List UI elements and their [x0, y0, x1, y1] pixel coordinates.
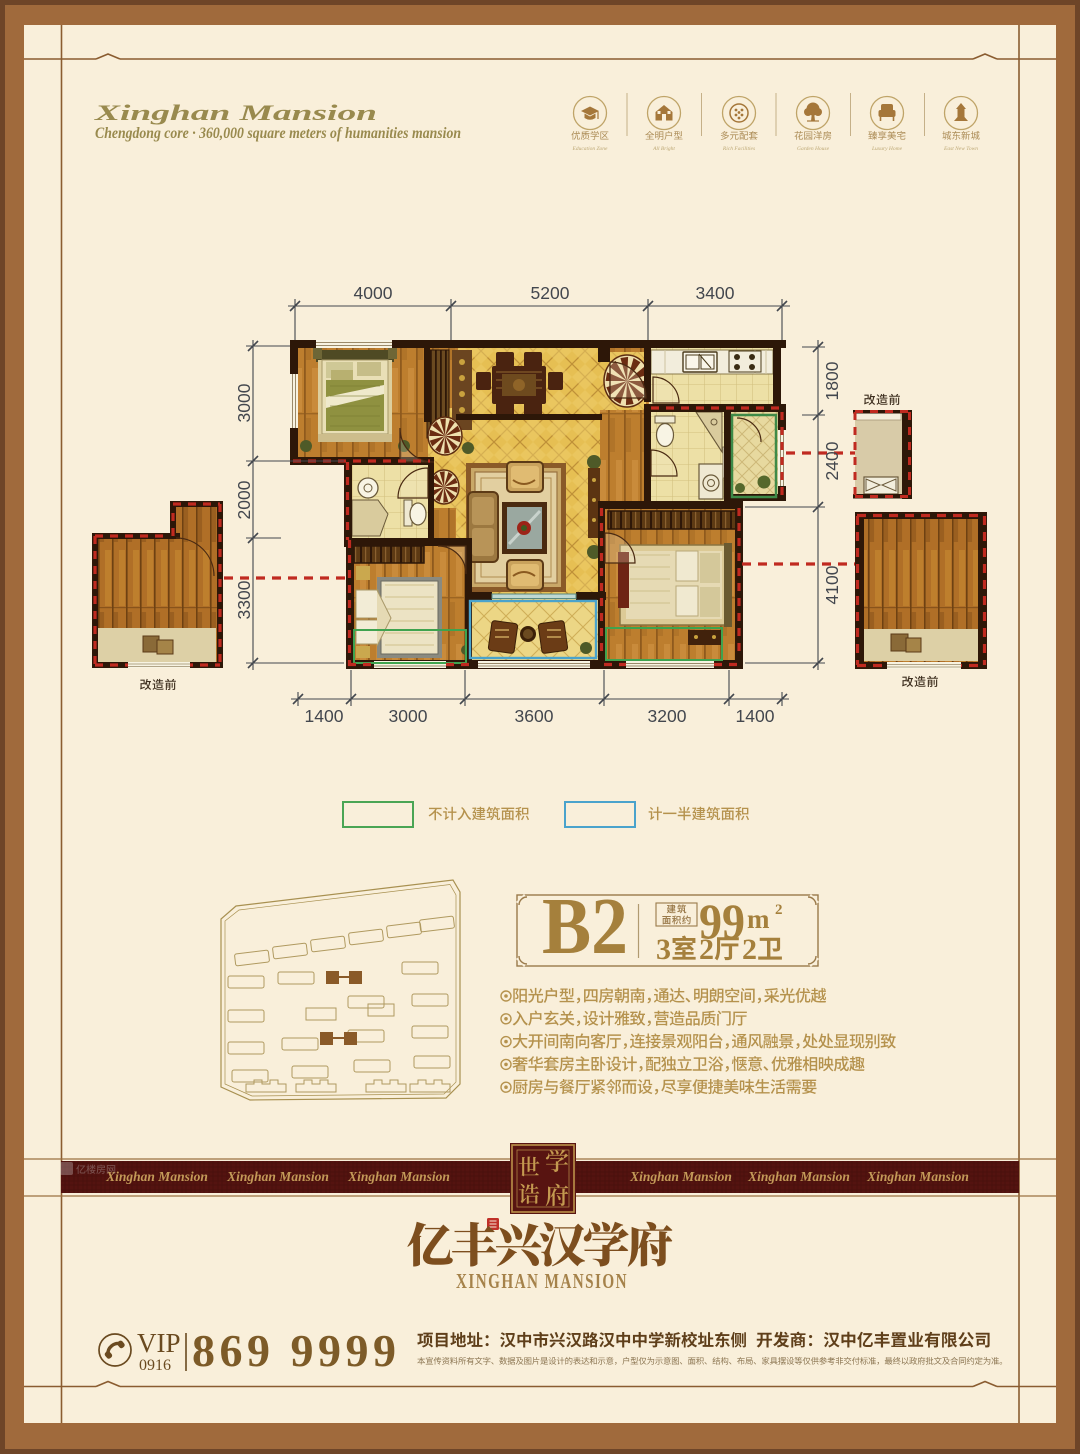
svg-text:Rich Facilities: Rich Facilities — [722, 146, 755, 152]
svg-text:4100: 4100 — [822, 565, 842, 604]
svg-text:Xinghan Mansion: Xinghan Mansion — [347, 1169, 450, 1184]
svg-text:East New Town: East New Town — [943, 146, 978, 152]
svg-text:2400: 2400 — [822, 441, 842, 480]
svg-text:Xinghan Mansion: Xinghan Mansion — [866, 1169, 969, 1184]
svg-text:Luxury Home: Luxury Home — [871, 146, 903, 152]
svg-text:3400: 3400 — [696, 283, 735, 303]
svg-text:m: m — [747, 904, 770, 934]
svg-text:All Bright: All Bright — [652, 146, 675, 152]
svg-text:3200: 3200 — [648, 706, 687, 726]
svg-text:869 9999: 869 9999 — [192, 1325, 396, 1376]
svg-text:3: 3 — [656, 933, 671, 966]
svg-text:2: 2 — [699, 933, 714, 966]
svg-text:3000: 3000 — [234, 383, 254, 422]
svg-text:2: 2 — [742, 933, 757, 966]
svg-text:Xinghan Mansion: Xinghan Mansion — [226, 1169, 329, 1184]
svg-text:Garden House: Garden House — [797, 146, 830, 152]
svg-text:5200: 5200 — [531, 283, 570, 303]
svg-text:3300: 3300 — [234, 580, 254, 619]
svg-text:Xinghan Mansion: Xinghan Mansion — [93, 100, 377, 125]
svg-text:Xinghan Mansion: Xinghan Mansion — [629, 1169, 732, 1184]
svg-text:0916: 0916 — [139, 1357, 171, 1374]
svg-text:1800: 1800 — [822, 361, 842, 400]
svg-text:Education Zone: Education Zone — [572, 146, 609, 152]
svg-text:3600: 3600 — [515, 706, 554, 726]
svg-text:XINGHAN MANSION: XINGHAN MANSION — [456, 1269, 628, 1293]
svg-text:4000: 4000 — [354, 283, 393, 303]
svg-text:3000: 3000 — [389, 706, 428, 726]
svg-text:Xinghan Mansion: Xinghan Mansion — [747, 1169, 850, 1184]
svg-text:Chengdong core · 360,000 squar: Chengdong core · 360,000 square meters o… — [95, 125, 461, 142]
svg-text:1400: 1400 — [736, 706, 775, 726]
svg-text:Xinghan Mansion: Xinghan Mansion — [105, 1169, 208, 1184]
svg-text:2000: 2000 — [234, 480, 254, 519]
svg-text:VIP: VIP — [137, 1328, 181, 1358]
svg-text:1400: 1400 — [305, 706, 344, 726]
svg-text:B2: B2 — [542, 883, 628, 971]
svg-text:2: 2 — [775, 902, 783, 918]
